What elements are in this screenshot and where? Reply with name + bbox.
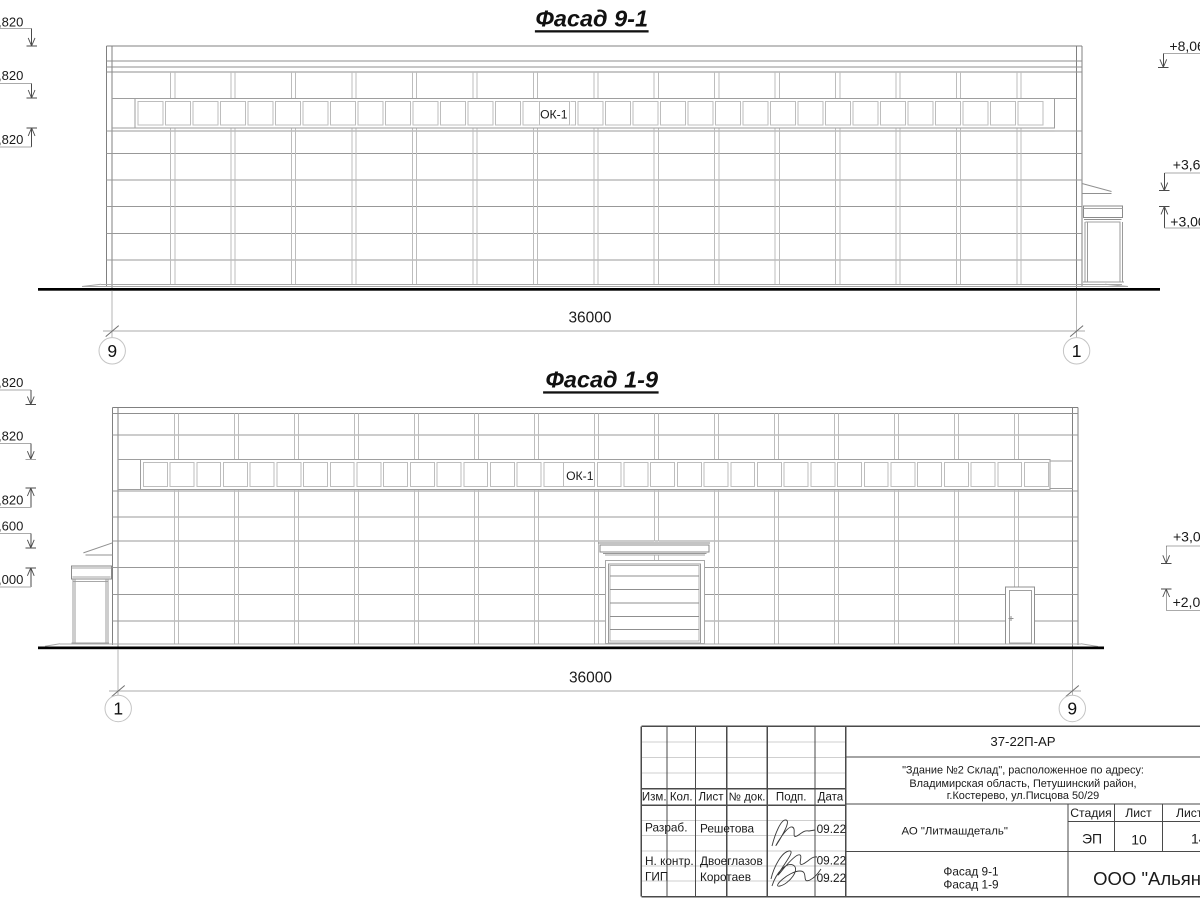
svg-text:,600: ,600 (0, 519, 23, 534)
svg-text:1: 1 (1072, 341, 1082, 361)
svg-text:№ док.: № док. (729, 792, 766, 804)
svg-text:Лист: Лист (699, 792, 725, 804)
svg-text:Фасад 9-1: Фасад 9-1 (536, 6, 649, 32)
svg-text:09.22: 09.22 (817, 822, 847, 836)
svg-text:Коротаев: Коротаев (700, 870, 751, 884)
svg-text:,000: ,000 (0, 572, 23, 587)
svg-text:Лист: Лист (1125, 806, 1152, 820)
svg-text:ОК-1: ОК-1 (566, 469, 594, 483)
svg-text:Н. контр.: Н. контр. (645, 854, 694, 868)
svg-text:9: 9 (107, 341, 117, 361)
svg-text:Фасад 1-9: Фасад 1-9 (943, 878, 998, 892)
svg-text:ГИП: ГИП (645, 870, 668, 884)
svg-text:09.22: 09.22 (817, 871, 847, 885)
svg-text:ООО "Альянс": ООО "Альянс" (1093, 868, 1200, 889)
svg-text:Фасад 9-1: Фасад 9-1 (943, 865, 998, 879)
svg-text:,820: ,820 (0, 429, 23, 444)
svg-text:Стадия: Стадия (1070, 806, 1112, 820)
svg-text:ЭП: ЭП (1082, 831, 1102, 847)
svg-text:,820: ,820 (0, 375, 23, 390)
svg-text:ОК-1: ОК-1 (540, 108, 568, 122)
svg-text:Изм.: Изм. (642, 792, 667, 804)
svg-text:09.22: 09.22 (817, 854, 847, 868)
svg-text:1: 1 (113, 699, 123, 719)
svg-text:36000: 36000 (569, 670, 612, 687)
svg-text:Владимирская область, Петушинс: Владимирская область, Петушинский район, (909, 778, 1136, 790)
svg-text:Кол.: Кол. (670, 792, 693, 804)
svg-text:г.Костерево, ул.Писцова 50/29: г.Костерево, ул.Писцова 50/29 (947, 790, 1099, 802)
svg-text:,820: ,820 (0, 15, 23, 30)
svg-text:10: 10 (1131, 832, 1147, 848)
svg-text:+8,06: +8,06 (1169, 38, 1200, 54)
svg-text:37-22П-АР: 37-22П-АР (990, 734, 1055, 749)
svg-text:Разраб.: Разраб. (645, 821, 687, 835)
svg-text:"Здание №2 Склад", расположенн: "Здание №2 Склад", расположенное по адре… (902, 764, 1144, 776)
svg-text:Фасад 1-9: Фасад 1-9 (546, 367, 659, 393)
svg-text:АО "Литмашдеталь": АО "Литмашдеталь" (901, 826, 1007, 838)
svg-text:+3,0: +3,0 (1173, 529, 1200, 545)
svg-text:+2,00: +2,00 (1173, 594, 1200, 610)
svg-text:14: 14 (1191, 831, 1200, 847)
svg-text:9: 9 (1067, 699, 1077, 719)
svg-text:Лист: Лист (1176, 806, 1200, 820)
svg-text:36000: 36000 (568, 310, 611, 327)
svg-text:Двоеглазов: Двоеглазов (700, 854, 763, 868)
svg-text:+3,00: +3,00 (1170, 214, 1200, 230)
svg-text:Подп.: Подп. (776, 792, 807, 804)
svg-text:Решетова: Решетова (700, 822, 755, 836)
svg-text:Дата: Дата (818, 792, 844, 804)
svg-text:,820: ,820 (0, 493, 23, 508)
svg-text:,820: ,820 (0, 68, 23, 83)
svg-text:,820: ,820 (0, 132, 23, 147)
svg-text:+3,60: +3,60 (1173, 157, 1200, 173)
